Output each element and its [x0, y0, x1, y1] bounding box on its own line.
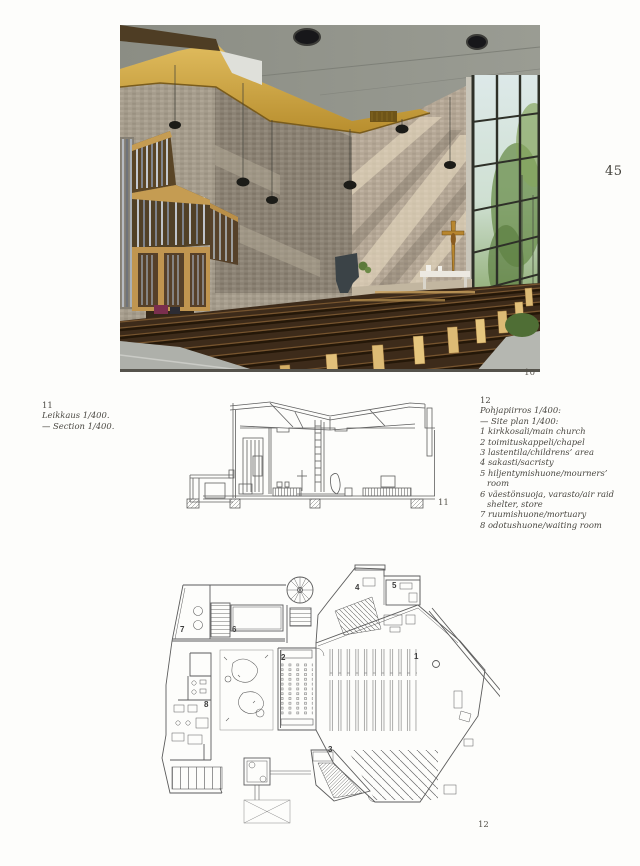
legend-item-1: 1 kirkkosali/main church: [480, 426, 630, 436]
ceiling-light: [467, 35, 487, 49]
caption-plan-title-english: — Site plan 1/400:: [480, 416, 630, 426]
plan-room-number-2: 2: [281, 654, 285, 662]
legend-item-5: 5 hiljentymishuone/mourners’ room: [480, 468, 630, 489]
page-number: 45: [605, 164, 623, 179]
soffit-grille: [370, 111, 397, 122]
ceiling-light: [294, 29, 320, 45]
indoor-plant: [505, 313, 539, 337]
legend-item-6: 6 väestönsuoja, varasto/air raid shelter…: [480, 489, 630, 510]
plan-room-number-8: 8: [204, 701, 208, 709]
legend-item-8: 8 odotushuone/waiting room: [480, 520, 630, 530]
plan-room-number-5: 5: [392, 582, 396, 590]
floor-plan-svg: [148, 553, 500, 825]
section-drawing-svg: [185, 398, 435, 520]
legend-item-7: 7 ruumishuone/mortuary: [480, 509, 630, 519]
church-interior-photo: [120, 25, 540, 372]
section-drawing: [185, 398, 435, 520]
church-photo-art: [120, 25, 540, 372]
legend-item-4: 4 sakasti/sacristy: [480, 457, 630, 467]
legend-item-3: 3 lastentila/childrens’ area: [480, 447, 630, 457]
caption-plan: 12 Pohjapiirros 1/400: — Site plan 1/400…: [480, 395, 630, 530]
caption-plan-title-finnish: Pohjapiirros 1/400:: [480, 405, 630, 415]
plan-room-number-3: 3: [328, 746, 332, 754]
plan-room-number-6: 6: [232, 626, 236, 634]
legend-item-2: 2 toimituskappeli/chapel: [480, 437, 630, 447]
caption-section-english: — Section 1/400.: [42, 421, 172, 431]
caption-section: 11 Leikkaus 1/400. — Section 1/400.: [42, 400, 172, 431]
caption-section-number: 11: [42, 400, 172, 410]
floor-plan-drawing: 1 2 3 4 5 6 7 8: [148, 553, 500, 825]
caption-section-finnish: Leikkaus 1/400.: [42, 410, 172, 420]
book-page: 45 10 11 Leikkaus 1/400. — Section 1/400…: [0, 0, 640, 866]
figure-label-photo: 10: [495, 368, 535, 378]
plan-room-number-1: 1: [414, 653, 418, 661]
caption-plan-number: 12: [480, 395, 630, 405]
figure-label-section: 11: [438, 498, 449, 508]
plan-room-number-4: 4: [355, 584, 359, 592]
plan-room-number-7: 7: [180, 626, 184, 634]
figure-label-plan: 12: [478, 820, 489, 830]
